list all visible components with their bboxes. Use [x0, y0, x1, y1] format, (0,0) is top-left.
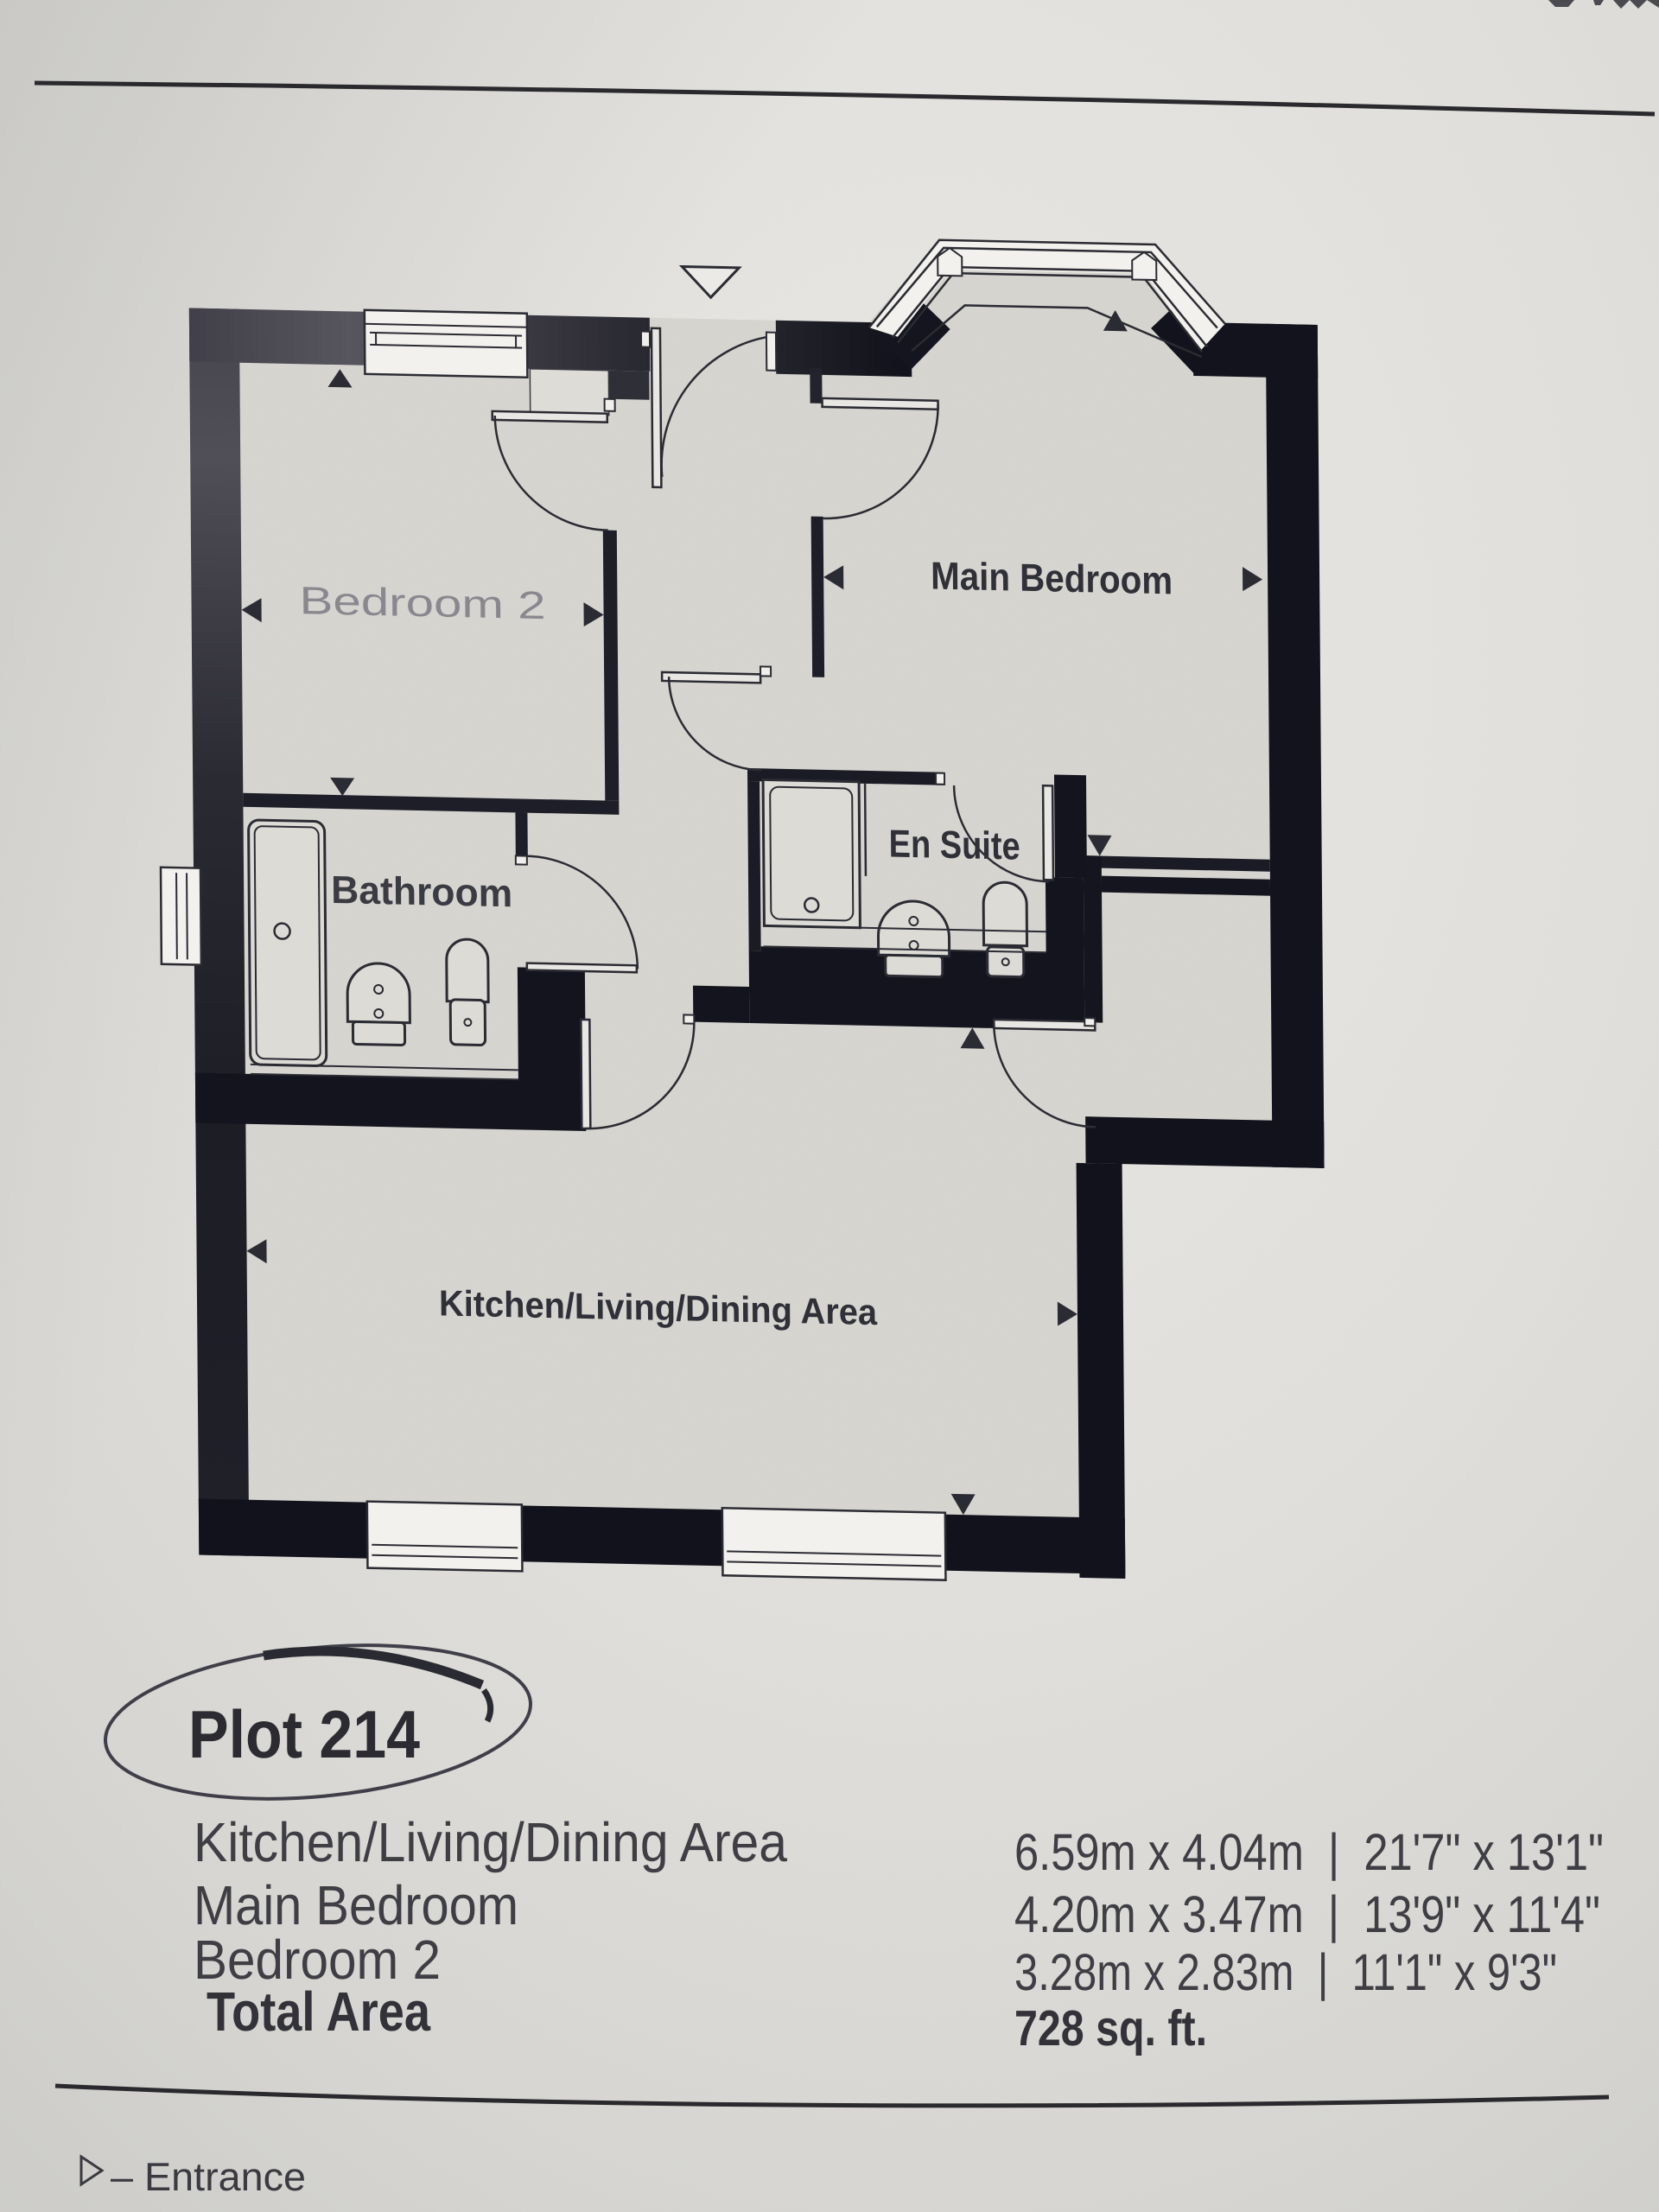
- svg-text:Bedroom 2: Bedroom 2: [299, 578, 545, 627]
- svg-text:6.59m x 4.04m | 21'7" x 13'1: 6.59m x 4.04m | 21'7" x 13'1": [1014, 1823, 1604, 1881]
- svg-text:4.20m x 3.47m | 13'9" x 11'4: 4.20m x 3.47m | 13'9" x 11'4": [1014, 1885, 1600, 1943]
- svg-text:Bathroom: Bathroom: [331, 868, 512, 915]
- svg-text:Kitchen/Living/Dining Area: Kitchen/Living/Dining Area: [194, 1811, 787, 1873]
- svg-text:Plot 214: Plot 214: [188, 1696, 420, 1772]
- svg-text:3.28m x 2.83m | 11'1" x 9'3": 3.28m x 2.83m | 11'1" x 9'3": [1014, 1943, 1557, 2001]
- svg-text:728 sq. ft.: 728 sq. ft.: [1014, 2000, 1207, 2056]
- svg-text:Main Bedroom: Main Bedroom: [194, 1874, 518, 1936]
- svg-text:Total Area: Total Area: [207, 1980, 430, 2043]
- svg-text:Main Bedroom: Main Bedroom: [931, 554, 1173, 603]
- svg-text:– Entrance: – Entrance: [111, 2154, 306, 2199]
- svg-text:En Suite: En Suite: [888, 821, 1020, 868]
